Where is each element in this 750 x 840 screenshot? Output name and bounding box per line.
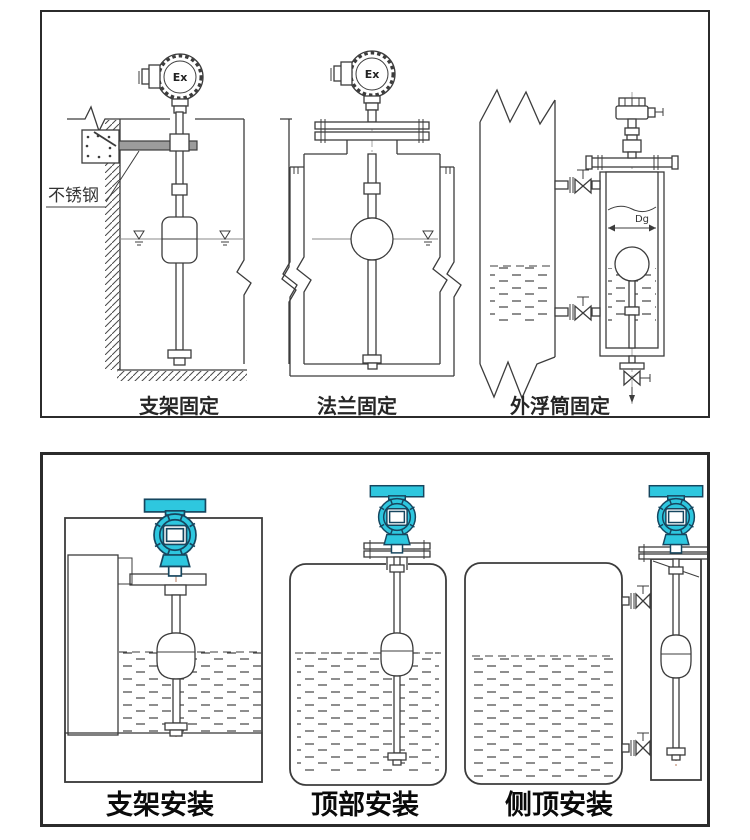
rod-end-stop — [168, 350, 191, 358]
rod-coupler — [172, 184, 187, 195]
smart-transmitter-head-icon — [145, 499, 206, 576]
isolation-valve-top — [555, 170, 600, 193]
tank-wall-break — [282, 119, 296, 364]
brick-wall — [68, 555, 118, 735]
neck-collar — [364, 96, 380, 103]
material-label: 不锈钢 — [48, 186, 99, 206]
neck-collar — [625, 128, 639, 135]
pipe-stub — [622, 597, 629, 605]
rod-end-tail — [393, 760, 401, 765]
rod-end-stop — [388, 753, 406, 760]
diameter-label: Dg — [635, 214, 649, 225]
flange-bolt — [672, 156, 678, 169]
process-tank — [480, 90, 555, 398]
pipe-stub — [592, 181, 600, 189]
rod-coupler — [390, 565, 404, 572]
guide-rod — [368, 110, 376, 122]
mounting-flange — [315, 119, 429, 154]
level-transmitter: Ex — [315, 51, 429, 369]
ex-marking: Ex — [173, 71, 188, 84]
caption-external-chamber-fixing: 外浮筒固定 — [510, 394, 610, 416]
level-transmitter: Ex — [139, 54, 203, 365]
process-coupling — [623, 140, 641, 152]
caption-flange-fixing: 法兰固定 — [317, 394, 397, 416]
guide-rod — [368, 260, 376, 355]
rod-clamp — [170, 134, 189, 151]
liquid — [297, 651, 439, 775]
float — [162, 217, 197, 263]
stem — [627, 135, 637, 140]
smart-transmitter-head-icon — [649, 486, 702, 553]
liquid — [490, 264, 550, 326]
tank-wall-break — [237, 119, 251, 364]
chamber-flange — [590, 158, 674, 167]
liquid — [472, 655, 615, 777]
rod-end-stop — [165, 723, 187, 730]
ground-hatch — [117, 371, 247, 381]
valve-icon — [636, 741, 650, 755]
drawing-external-chamber-fixing: Dg — [480, 90, 678, 416]
guide-rod — [629, 315, 635, 348]
valve-icon — [575, 306, 591, 320]
cable-connector-icon — [149, 65, 160, 88]
drain-valve — [620, 356, 650, 403]
level-mark-icon — [220, 231, 230, 245]
stem — [628, 119, 636, 128]
pipe-stub — [555, 181, 568, 189]
transmitter-body — [616, 106, 648, 119]
caption-side-top-install: 侧顶安装 — [505, 790, 613, 821]
rod-coupler — [669, 567, 683, 574]
caption-bracket-install: 支架安装 — [106, 790, 214, 821]
caption-top-install: 顶部安装 — [311, 789, 419, 821]
tank-wall-break — [433, 167, 447, 364]
rod-end-stop — [363, 355, 381, 363]
stem — [628, 152, 636, 158]
float-capsule — [661, 635, 691, 678]
fixing-methods-canvas: Ex 不锈钢 支架固定 — [42, 12, 708, 416]
float-capsule — [381, 633, 413, 676]
valve-icon — [636, 594, 650, 608]
float-capsule — [157, 633, 195, 679]
ex-transmitter-head-icon: Ex — [349, 51, 395, 97]
level-mark-icon — [423, 231, 433, 245]
ex-transmitter-head-icon: Ex — [157, 54, 203, 100]
pipe-stub — [592, 308, 600, 316]
ex-marking: Ex — [365, 68, 380, 81]
rod-coupler — [625, 307, 639, 315]
tank-wall-break — [283, 167, 297, 376]
neck-collar — [366, 103, 378, 110]
drawing-side-top-install: 侧顶安装 — [465, 486, 707, 821]
drawing-top-install: 顶部安装 — [290, 486, 446, 821]
tank-break-top — [480, 90, 555, 124]
cable-connector-icon — [648, 108, 655, 117]
drain-flange — [620, 363, 644, 369]
level-mark-icon — [134, 231, 144, 245]
head-transmitter — [616, 98, 663, 158]
pipe-stub — [555, 308, 568, 316]
isolation-valve-bottom — [622, 733, 650, 756]
flange-bolt — [586, 156, 592, 169]
guide-rod — [173, 679, 180, 723]
rod-end-tail — [174, 358, 185, 365]
caption-bracket-fixing: 支架固定 — [139, 394, 219, 416]
float-ball — [351, 218, 393, 260]
rod-end-tail — [368, 363, 377, 369]
float-ball — [615, 247, 649, 281]
rod-end-tail — [170, 730, 182, 736]
drawing-bracket-fixing: Ex 不锈钢 支架固定 — [46, 54, 296, 416]
rod-end-stop — [667, 748, 685, 755]
drain-stem — [629, 356, 635, 363]
valve-icon — [575, 179, 591, 193]
rod-end-tail — [672, 755, 680, 760]
tank-break-bottom — [480, 357, 555, 398]
brick-floor — [65, 733, 262, 782]
tank-wall-break — [297, 167, 311, 364]
isolation-valve-bottom — [555, 297, 600, 320]
guide-rod — [394, 676, 400, 753]
drawing-bracket-install: 支架安装 — [65, 499, 262, 821]
rod-coupler — [364, 183, 380, 194]
guide-rod — [172, 595, 180, 633]
process-coupling — [165, 585, 186, 595]
installation-methods-panel: 支架安装 顶部安装 — [40, 452, 710, 827]
guide-rod — [629, 281, 635, 307]
drawing-flange-fixing: Ex 法兰固定 — [283, 51, 461, 416]
fixing-methods-panel: Ex 不锈钢 支架固定 — [40, 10, 710, 418]
cable-connector-icon — [341, 62, 352, 85]
neck-collar — [172, 99, 188, 106]
drain-arrow — [629, 395, 635, 403]
guide-rod — [673, 678, 679, 748]
installation-diagrams: { "colors": { "accent": "#2EC7DF", "acce… — [0, 0, 750, 840]
installation-methods-canvas: 支架安装 顶部安装 — [43, 455, 707, 824]
tank-wall-break — [447, 167, 461, 376]
isolation-valve-top — [622, 586, 650, 609]
pipe-stub — [622, 744, 629, 752]
